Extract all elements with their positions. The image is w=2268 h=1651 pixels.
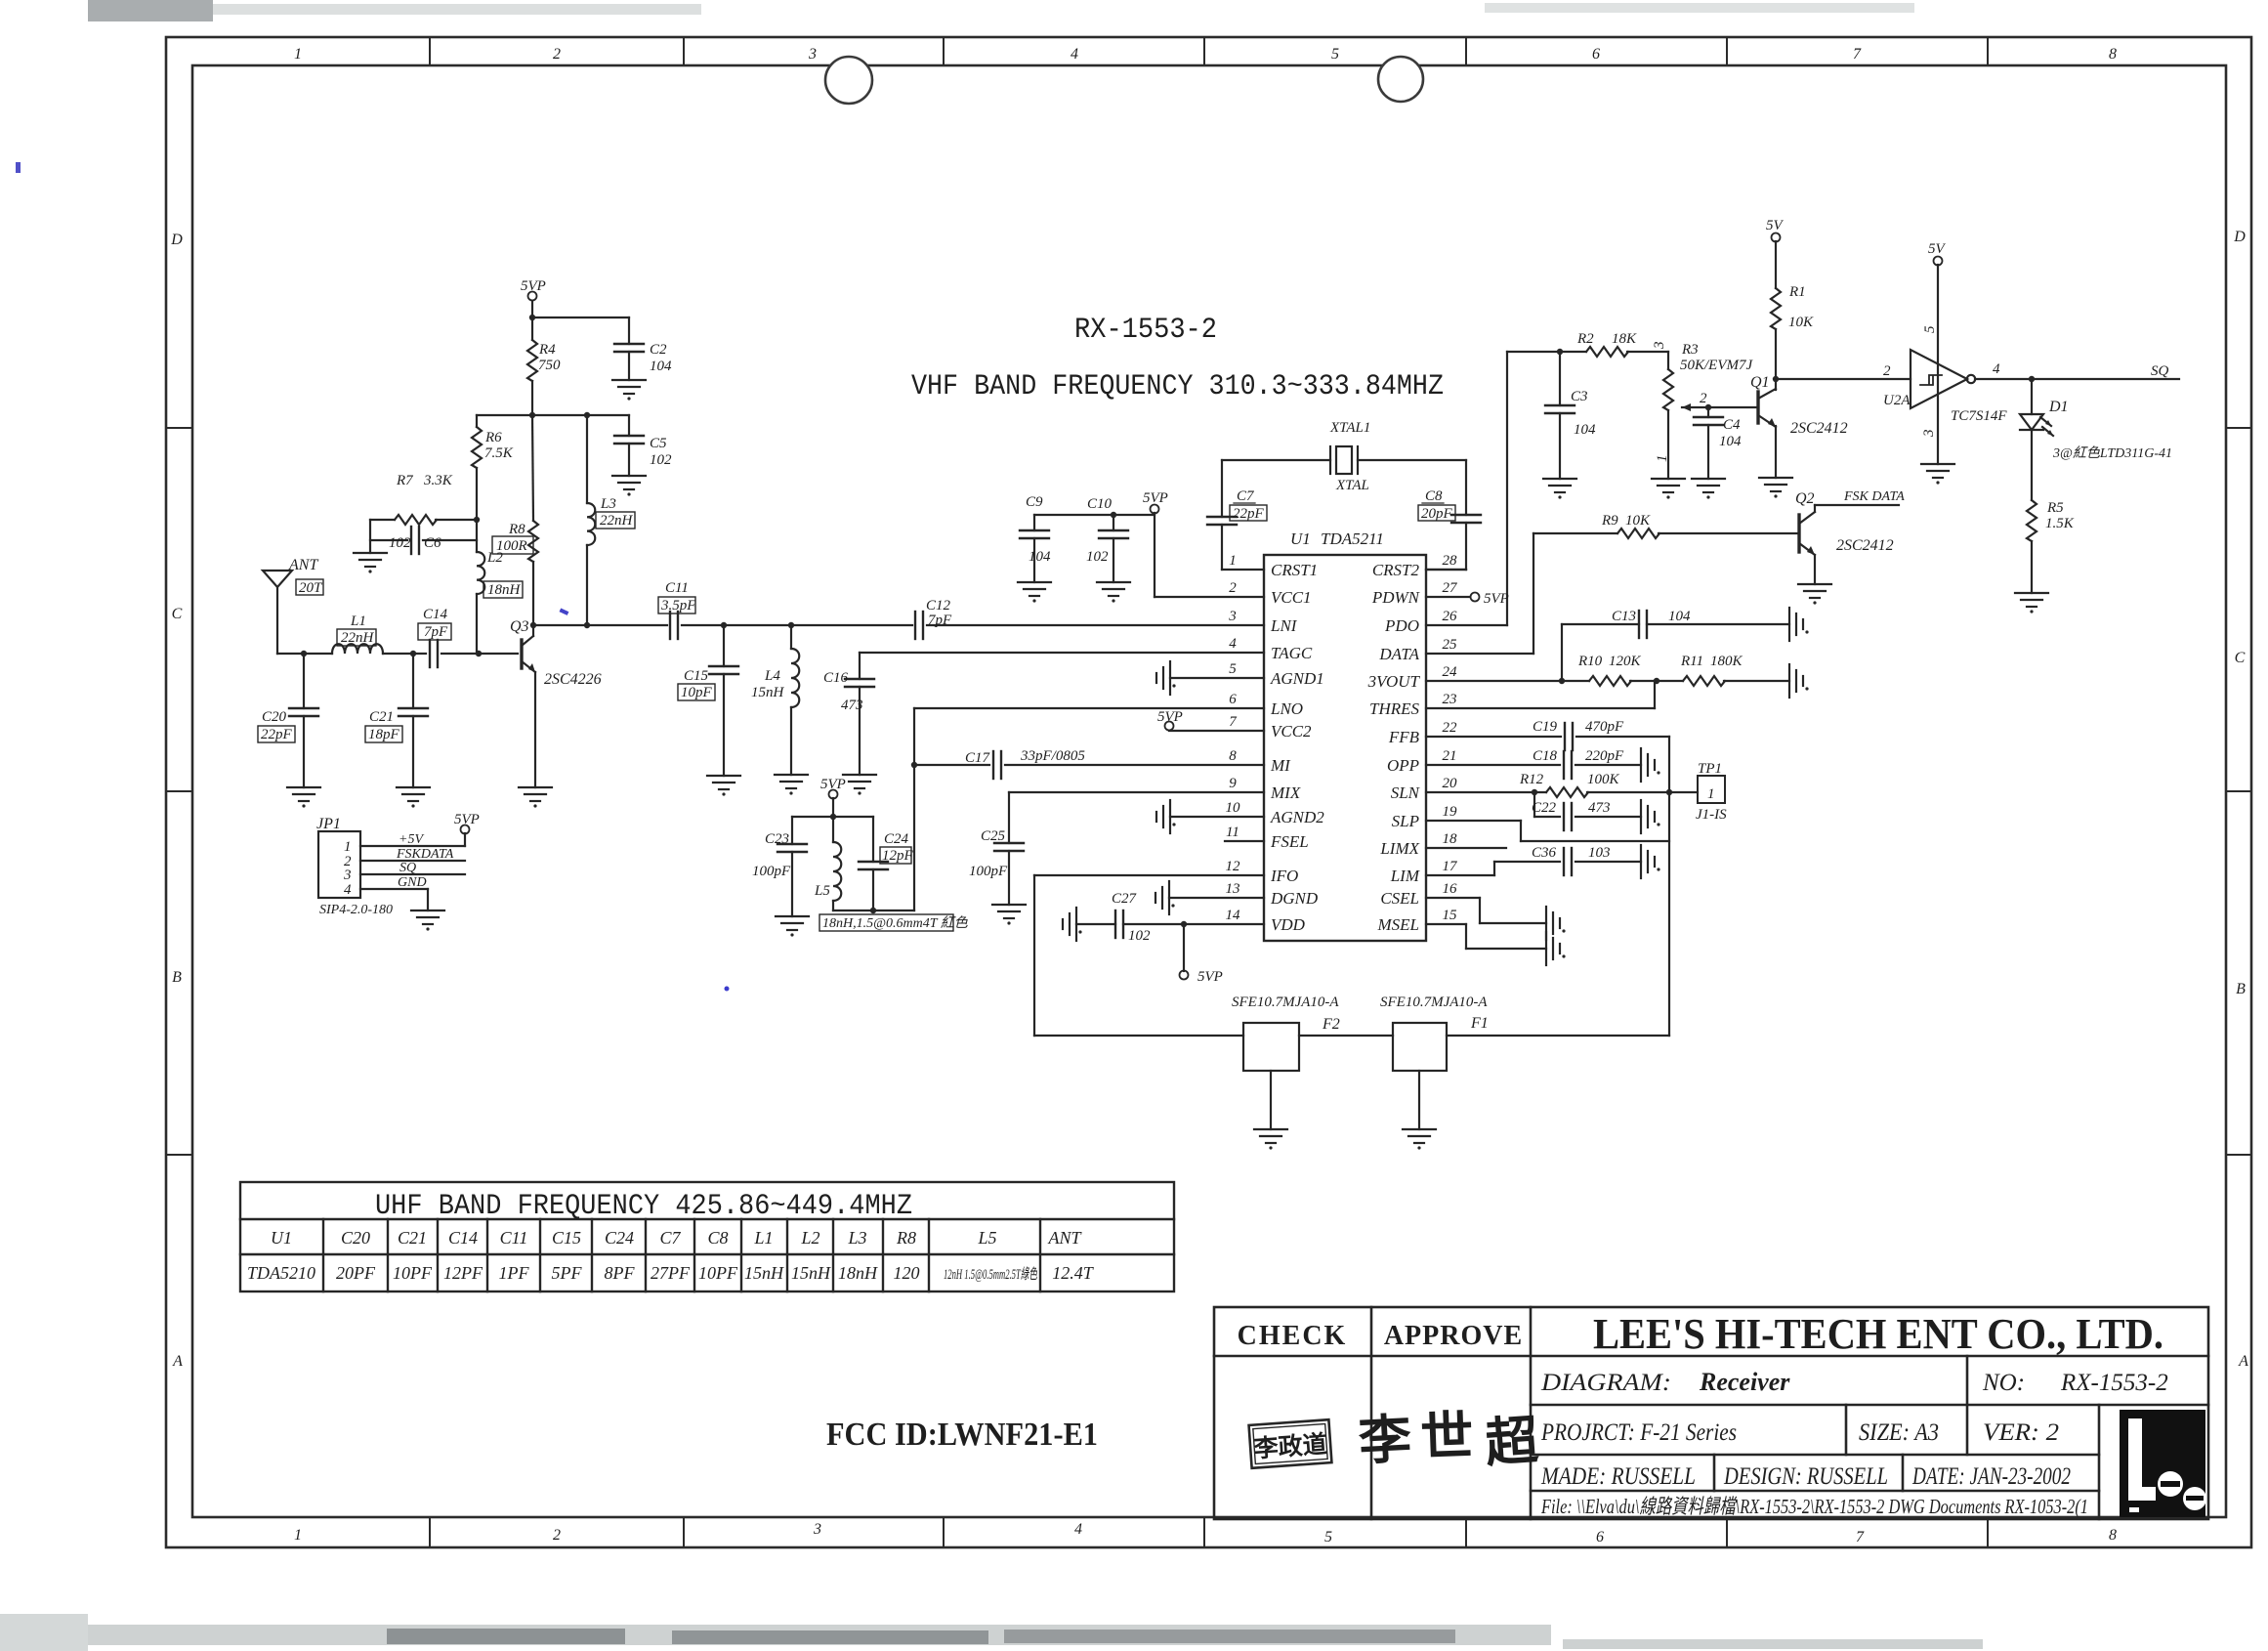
svg-text:3@紅色LTD311G-41: 3@紅色LTD311G-41 xyxy=(2052,445,2172,461)
svg-text:5VP: 5VP xyxy=(1143,490,1168,506)
svg-text:22nH: 22nH xyxy=(600,513,634,529)
svg-text:16: 16 xyxy=(1443,881,1458,897)
svg-text:XTAL1: XTAL1 xyxy=(1329,420,1370,436)
svg-text:25: 25 xyxy=(1443,637,1458,653)
svg-text:MIX: MIX xyxy=(1270,783,1301,802)
svg-text:SFE10.7MJA10-A: SFE10.7MJA10-A xyxy=(1380,995,1488,1010)
svg-text:UHF BAND FREQUENCY 425.86~449.: UHF BAND FREQUENCY 425.86~449.4MHZ xyxy=(375,1190,912,1223)
svg-text:C21: C21 xyxy=(369,709,394,725)
svg-text:21: 21 xyxy=(1443,748,1457,764)
svg-text:3.3K: 3.3K xyxy=(423,473,453,488)
svg-text:7: 7 xyxy=(1856,1529,1865,1545)
svg-text:1: 1 xyxy=(294,46,302,63)
svg-text:27: 27 xyxy=(1443,580,1459,596)
svg-text:2SC4226: 2SC4226 xyxy=(544,671,602,688)
svg-text:1.5K: 1.5K xyxy=(2045,516,2075,531)
svg-text:C10: C10 xyxy=(1087,496,1113,512)
svg-text:SLP: SLP xyxy=(1392,812,1419,830)
svg-text:3: 3 xyxy=(1921,430,1937,439)
svg-text:20T: 20T xyxy=(299,580,323,596)
svg-text:R9: R9 xyxy=(1601,513,1618,529)
svg-text:473: 473 xyxy=(841,698,863,713)
svg-text:R7: R7 xyxy=(396,473,414,488)
svg-text:A: A xyxy=(172,1353,183,1370)
svg-text:12: 12 xyxy=(1226,859,1241,874)
svg-text:C6: C6 xyxy=(424,535,441,551)
svg-text:28: 28 xyxy=(1443,553,1458,569)
svg-text:世: 世 xyxy=(1419,1407,1474,1467)
svg-text:FSK DATA: FSK DATA xyxy=(1843,489,1905,504)
svg-text:SIZE: A3: SIZE: A3 xyxy=(1859,1419,1939,1446)
svg-text:10K: 10K xyxy=(1788,315,1814,330)
svg-text:18K: 18K xyxy=(1612,331,1637,347)
svg-text:1PF: 1PF xyxy=(499,1263,530,1283)
svg-text:C7: C7 xyxy=(1237,488,1255,504)
svg-text:7: 7 xyxy=(1229,714,1238,730)
svg-text:20PF: 20PF xyxy=(336,1263,376,1283)
svg-text:50K/EVM7J: 50K/EVM7J xyxy=(1680,358,1753,373)
svg-text:C14: C14 xyxy=(448,1228,478,1248)
svg-text:12pF: 12pF xyxy=(882,848,914,864)
svg-text:3.5pF: 3.5pF xyxy=(660,598,696,614)
svg-text:DATE: JAN-23-2002: DATE: JAN-23-2002 xyxy=(1911,1463,2071,1490)
svg-text:26: 26 xyxy=(1443,609,1458,624)
svg-text:C19: C19 xyxy=(1533,719,1558,735)
svg-text:VCC1: VCC1 xyxy=(1271,588,1312,607)
svg-text:VCC2: VCC2 xyxy=(1271,722,1312,741)
svg-text:C21: C21 xyxy=(398,1228,427,1248)
svg-text:F2: F2 xyxy=(1322,1016,1340,1033)
svg-text:R8: R8 xyxy=(896,1228,916,1248)
svg-text:9: 9 xyxy=(1229,776,1237,791)
svg-text:33pF/0805: 33pF/0805 xyxy=(1020,748,1085,764)
svg-text:TC7S14F: TC7S14F xyxy=(1951,408,2007,424)
svg-text:ANT: ANT xyxy=(1047,1228,1082,1248)
svg-text:Q1: Q1 xyxy=(1750,374,1770,391)
svg-text:C22: C22 xyxy=(1532,800,1557,816)
svg-text:2: 2 xyxy=(1700,391,1707,406)
svg-text:1: 1 xyxy=(294,1527,302,1544)
svg-text:180K: 180K xyxy=(1710,654,1743,669)
svg-text:PROJRCT: F-21 Series: PROJRCT: F-21 Series xyxy=(1540,1419,1737,1446)
svg-text:1: 1 xyxy=(1655,455,1670,463)
svg-text:C7: C7 xyxy=(659,1228,681,1248)
svg-text:Receiver: Receiver xyxy=(1699,1368,1790,1396)
svg-text:C27: C27 xyxy=(1112,891,1138,907)
svg-text:LNO: LNO xyxy=(1270,699,1303,718)
svg-text:5: 5 xyxy=(1324,1529,1332,1545)
svg-text:C15: C15 xyxy=(552,1228,581,1248)
svg-text:CRST1: CRST1 xyxy=(1271,561,1318,579)
svg-text:C16: C16 xyxy=(823,670,849,686)
svg-text:TP1: TP1 xyxy=(1698,761,1722,777)
svg-text:18pF: 18pF xyxy=(368,727,400,742)
svg-text:473: 473 xyxy=(1588,800,1611,816)
svg-text:L3: L3 xyxy=(600,496,616,512)
svg-text:SQ: SQ xyxy=(399,861,416,875)
svg-text:1: 1 xyxy=(344,839,352,855)
svg-text:10PF: 10PF xyxy=(698,1263,738,1283)
svg-text:C20: C20 xyxy=(341,1228,370,1248)
svg-text:THRES: THRES xyxy=(1369,699,1420,718)
svg-text:ANT: ANT xyxy=(288,557,318,573)
svg-text:20pF: 20pF xyxy=(1421,506,1453,522)
svg-text:LNI: LNI xyxy=(1270,616,1298,635)
svg-text:7.5K: 7.5K xyxy=(484,445,514,461)
svg-text:2: 2 xyxy=(1883,363,1891,379)
svg-text:120K: 120K xyxy=(1609,654,1642,669)
svg-text:L5: L5 xyxy=(814,883,830,899)
svg-text:24: 24 xyxy=(1443,664,1458,680)
svg-text:15nH: 15nH xyxy=(744,1263,784,1283)
svg-text:SLN: SLN xyxy=(1391,783,1421,802)
svg-text:13: 13 xyxy=(1226,881,1240,897)
svg-text:C24: C24 xyxy=(884,831,909,847)
svg-text:LIMX: LIMX xyxy=(1379,839,1419,858)
svg-text:DIAGRAM:: DIAGRAM: xyxy=(1540,1370,1671,1396)
svg-text:VHF BAND FREQUENCY 310.3~333.8: VHF BAND FREQUENCY 310.3~333.84MHZ xyxy=(911,370,1444,403)
svg-text:C25: C25 xyxy=(981,828,1006,844)
svg-text:C17: C17 xyxy=(965,750,991,766)
svg-text:PDWN: PDWN xyxy=(1371,588,1421,607)
svg-text:3: 3 xyxy=(808,46,817,63)
svg-text:7: 7 xyxy=(1853,46,1862,63)
svg-text:11: 11 xyxy=(1226,825,1239,840)
svg-text:C15: C15 xyxy=(684,668,709,684)
svg-text:B: B xyxy=(2236,981,2246,997)
svg-text:14: 14 xyxy=(1226,908,1241,923)
svg-text:LEE'S HI-TECH ENT CO., LTD.: LEE'S HI-TECH ENT CO., LTD. xyxy=(1593,1310,2163,1358)
svg-text:22pF: 22pF xyxy=(1233,506,1265,522)
svg-text:GND: GND xyxy=(398,875,427,890)
svg-text:D: D xyxy=(2233,229,2246,245)
svg-text:R5: R5 xyxy=(2046,500,2064,516)
svg-text:1: 1 xyxy=(1707,786,1715,802)
svg-text:5V: 5V xyxy=(1766,218,1785,233)
svg-text:VDD: VDD xyxy=(1271,915,1306,934)
svg-text:RX-1553-2: RX-1553-2 xyxy=(1074,314,1217,347)
svg-text:C11: C11 xyxy=(500,1228,528,1248)
svg-text:6: 6 xyxy=(1229,692,1237,707)
svg-text:C20: C20 xyxy=(262,709,287,725)
svg-text:2: 2 xyxy=(553,46,561,63)
svg-text:102: 102 xyxy=(650,452,672,468)
svg-text:5VP: 5VP xyxy=(1157,709,1183,725)
svg-text:U1: U1 xyxy=(1290,529,1311,548)
svg-text:15nH: 15nH xyxy=(751,685,785,700)
svg-text:4: 4 xyxy=(1074,1521,1082,1538)
svg-text:R8: R8 xyxy=(508,522,525,537)
svg-text:超: 超 xyxy=(1484,1411,1541,1473)
svg-text:104: 104 xyxy=(1574,422,1596,438)
svg-text:104: 104 xyxy=(1668,609,1691,624)
svg-text:OPP: OPP xyxy=(1387,756,1419,775)
svg-text:AGND1: AGND1 xyxy=(1270,669,1324,688)
svg-text:104: 104 xyxy=(1719,434,1742,449)
svg-text:6: 6 xyxy=(1596,1529,1604,1545)
svg-text:4: 4 xyxy=(344,882,352,898)
svg-text:C: C xyxy=(2235,650,2246,666)
svg-text:FFB: FFB xyxy=(1388,728,1420,746)
svg-text:2: 2 xyxy=(1229,580,1237,596)
svg-text:C18: C18 xyxy=(1533,748,1558,764)
svg-text:470pF: 470pF xyxy=(1585,719,1624,735)
svg-text:L1: L1 xyxy=(753,1228,773,1248)
svg-text:C14: C14 xyxy=(423,607,448,622)
svg-text:1: 1 xyxy=(1229,553,1237,569)
svg-text:5: 5 xyxy=(1331,46,1339,63)
svg-text:20: 20 xyxy=(1443,776,1458,791)
svg-text:8: 8 xyxy=(2109,1527,2117,1544)
svg-text:18: 18 xyxy=(1443,831,1458,847)
svg-text:15nH: 15nH xyxy=(791,1263,831,1283)
svg-text:19: 19 xyxy=(1443,804,1458,820)
svg-text:FSKDATA: FSKDATA xyxy=(396,847,454,862)
svg-text:22: 22 xyxy=(1443,720,1458,736)
svg-text:李: 李 xyxy=(1357,1410,1412,1471)
svg-text:100pF: 100pF xyxy=(752,864,791,879)
svg-text:IFO: IFO xyxy=(1270,867,1298,885)
svg-text:FSEL: FSEL xyxy=(1270,832,1309,851)
svg-text:C36: C36 xyxy=(1532,845,1557,861)
svg-text:4: 4 xyxy=(1071,46,1078,63)
svg-text:7pF: 7pF xyxy=(424,624,448,640)
svg-text:18nH,1.5@0.6mm4T 紅色: 18nH,1.5@0.6mm4T 紅色 xyxy=(822,915,969,931)
svg-text:8: 8 xyxy=(1229,748,1237,764)
svg-text:7pF: 7pF xyxy=(928,613,952,628)
svg-text:5VP: 5VP xyxy=(1484,591,1509,607)
svg-text:TDA5211: TDA5211 xyxy=(1321,529,1384,548)
svg-text:C4: C4 xyxy=(1723,417,1741,433)
svg-text:3VOUT: 3VOUT xyxy=(1367,672,1421,691)
svg-text:C12: C12 xyxy=(926,598,951,614)
svg-text:4: 4 xyxy=(1229,636,1237,652)
svg-text:18nH: 18nH xyxy=(838,1263,878,1283)
svg-text:100K: 100K xyxy=(1587,772,1620,787)
svg-text:102: 102 xyxy=(1086,549,1109,565)
svg-text:CSEL: CSEL xyxy=(1380,889,1419,908)
svg-text:220pF: 220pF xyxy=(1585,748,1624,764)
svg-text:李政道: 李政道 xyxy=(1253,1429,1328,1462)
svg-text:23: 23 xyxy=(1443,692,1457,707)
svg-text:5VP: 5VP xyxy=(454,812,480,827)
svg-text:17: 17 xyxy=(1443,859,1459,874)
svg-text:DATA: DATA xyxy=(1378,645,1419,663)
svg-text:12nH 1.5@0.5mm2.5T綠色: 12nH 1.5@0.5mm2.5T綠色 xyxy=(944,1266,1038,1283)
svg-text:C3: C3 xyxy=(1571,389,1588,404)
svg-text:18nH: 18nH xyxy=(487,582,522,598)
svg-text:J1-IS: J1-IS xyxy=(1696,807,1727,823)
svg-text:MI: MI xyxy=(1270,756,1291,775)
svg-text:12.4T: 12.4T xyxy=(1052,1263,1095,1283)
svg-text:TDA5210: TDA5210 xyxy=(247,1263,315,1283)
svg-text:Q3: Q3 xyxy=(510,618,529,635)
svg-text:L1: L1 xyxy=(350,614,366,629)
svg-text:22nH: 22nH xyxy=(341,630,375,646)
svg-text:C5: C5 xyxy=(650,436,667,451)
svg-text:120: 120 xyxy=(894,1263,920,1283)
svg-text:102: 102 xyxy=(1128,928,1151,944)
svg-text:8: 8 xyxy=(2109,46,2117,63)
svg-text:750: 750 xyxy=(538,358,561,373)
svg-text:C8: C8 xyxy=(707,1228,728,1248)
svg-text:C13: C13 xyxy=(1612,609,1636,624)
svg-text:3: 3 xyxy=(1652,342,1667,351)
svg-text:103: 103 xyxy=(1588,845,1611,861)
svg-text:SFE10.7MJA10-A: SFE10.7MJA10-A xyxy=(1232,995,1339,1010)
svg-text:JP1: JP1 xyxy=(316,816,341,832)
svg-text:5VP: 5VP xyxy=(521,278,546,294)
svg-text:R11: R11 xyxy=(1680,654,1703,669)
svg-text:R3: R3 xyxy=(1681,342,1699,358)
svg-text:F1: F1 xyxy=(1470,1015,1489,1032)
svg-text:27PF: 27PF xyxy=(651,1263,691,1283)
svg-text:R4: R4 xyxy=(538,342,556,358)
svg-text:10: 10 xyxy=(1226,800,1241,816)
svg-text:D1: D1 xyxy=(2048,399,2069,415)
svg-text:SQ: SQ xyxy=(2151,363,2169,379)
svg-text:3: 3 xyxy=(813,1521,821,1538)
svg-text:R6: R6 xyxy=(484,430,502,445)
svg-text:A: A xyxy=(2238,1353,2248,1370)
svg-text:10pF: 10pF xyxy=(681,685,713,700)
svg-text:12PF: 12PF xyxy=(443,1263,483,1283)
svg-text:File: \\Elva\du\線路資料歸檔\RX-1553: File: \\Elva\du\線路資料歸檔\RX-1553-2\RX-1553… xyxy=(1540,1495,2088,1518)
svg-text:Q2: Q2 xyxy=(1795,490,1815,507)
svg-text:100pF: 100pF xyxy=(969,864,1008,879)
svg-text:R2: R2 xyxy=(1576,331,1594,347)
svg-text:2SC2412: 2SC2412 xyxy=(1790,420,1848,437)
svg-text:L3: L3 xyxy=(847,1228,866,1248)
svg-text:10PF: 10PF xyxy=(393,1263,433,1283)
svg-text:5: 5 xyxy=(1229,661,1237,677)
svg-text:B: B xyxy=(172,969,182,986)
svg-text:10K: 10K xyxy=(1625,513,1651,529)
svg-text:C8: C8 xyxy=(1425,488,1443,504)
svg-text:PDO: PDO xyxy=(1384,616,1419,635)
svg-text:3: 3 xyxy=(1228,609,1237,624)
svg-text:104: 104 xyxy=(1029,549,1051,565)
svg-text:AGND2: AGND2 xyxy=(1270,808,1324,826)
svg-text:C11: C11 xyxy=(665,580,689,596)
svg-text:U2A: U2A xyxy=(1883,393,1911,408)
svg-text:L4: L4 xyxy=(764,668,780,684)
svg-text:C23: C23 xyxy=(765,831,789,847)
svg-text:104: 104 xyxy=(650,359,672,374)
svg-text:DGND: DGND xyxy=(1270,889,1319,908)
svg-text:L2: L2 xyxy=(486,550,503,566)
svg-text:22pF: 22pF xyxy=(261,727,293,742)
svg-text:4: 4 xyxy=(1993,361,2000,377)
svg-text:NO:: NO: xyxy=(1982,1370,2025,1396)
svg-text:3: 3 xyxy=(343,868,352,883)
svg-text:DESIGN: RUSSELL: DESIGN: RUSSELL xyxy=(1723,1463,1888,1490)
svg-text:C: C xyxy=(172,606,183,622)
svg-text:C2: C2 xyxy=(650,342,667,358)
svg-text:U1: U1 xyxy=(271,1228,292,1248)
svg-text:MSEL: MSEL xyxy=(1377,915,1420,934)
svg-text:R12: R12 xyxy=(1519,772,1544,787)
svg-text:MADE: RUSSELL: MADE: RUSSELL xyxy=(1540,1463,1696,1490)
svg-text:APPROVE: APPROVE xyxy=(1384,1321,1523,1351)
svg-text:2SC2412: 2SC2412 xyxy=(1836,537,1894,554)
svg-text:LIM: LIM xyxy=(1390,867,1420,885)
svg-text:SIP4-2.0-180: SIP4-2.0-180 xyxy=(319,903,393,917)
svg-text:RX-1553-2: RX-1553-2 xyxy=(2060,1370,2168,1396)
svg-text:15: 15 xyxy=(1443,908,1458,923)
svg-text:D: D xyxy=(170,232,183,248)
svg-text:+5V: +5V xyxy=(399,832,424,847)
svg-text:C9: C9 xyxy=(1026,494,1043,510)
svg-text:5V: 5V xyxy=(1928,241,1947,257)
svg-text:R1: R1 xyxy=(1788,284,1806,300)
svg-text:102: 102 xyxy=(389,535,411,551)
svg-text:R10: R10 xyxy=(1577,654,1603,669)
svg-text:5VP: 5VP xyxy=(820,777,846,792)
svg-text:FCC ID:LWNF21-E1: FCC ID:LWNF21-E1 xyxy=(826,1417,1098,1453)
svg-text:8PF: 8PF xyxy=(605,1263,636,1283)
svg-text:TAGC: TAGC xyxy=(1271,644,1313,662)
svg-text:5: 5 xyxy=(1922,325,1938,333)
svg-text:CRST2: CRST2 xyxy=(1372,561,1420,579)
svg-text:5VP: 5VP xyxy=(1197,969,1223,985)
svg-text:C24: C24 xyxy=(605,1228,634,1248)
svg-text:6: 6 xyxy=(1592,46,1600,63)
svg-text:L5: L5 xyxy=(977,1228,996,1248)
svg-text:CHECK: CHECK xyxy=(1238,1321,1348,1351)
svg-text:L2: L2 xyxy=(800,1228,819,1248)
svg-text:VER: 2: VER: 2 xyxy=(1983,1419,2059,1446)
svg-text:2: 2 xyxy=(553,1527,561,1544)
svg-text:XTAL: XTAL xyxy=(1335,478,1369,493)
svg-text:5PF: 5PF xyxy=(552,1263,583,1283)
